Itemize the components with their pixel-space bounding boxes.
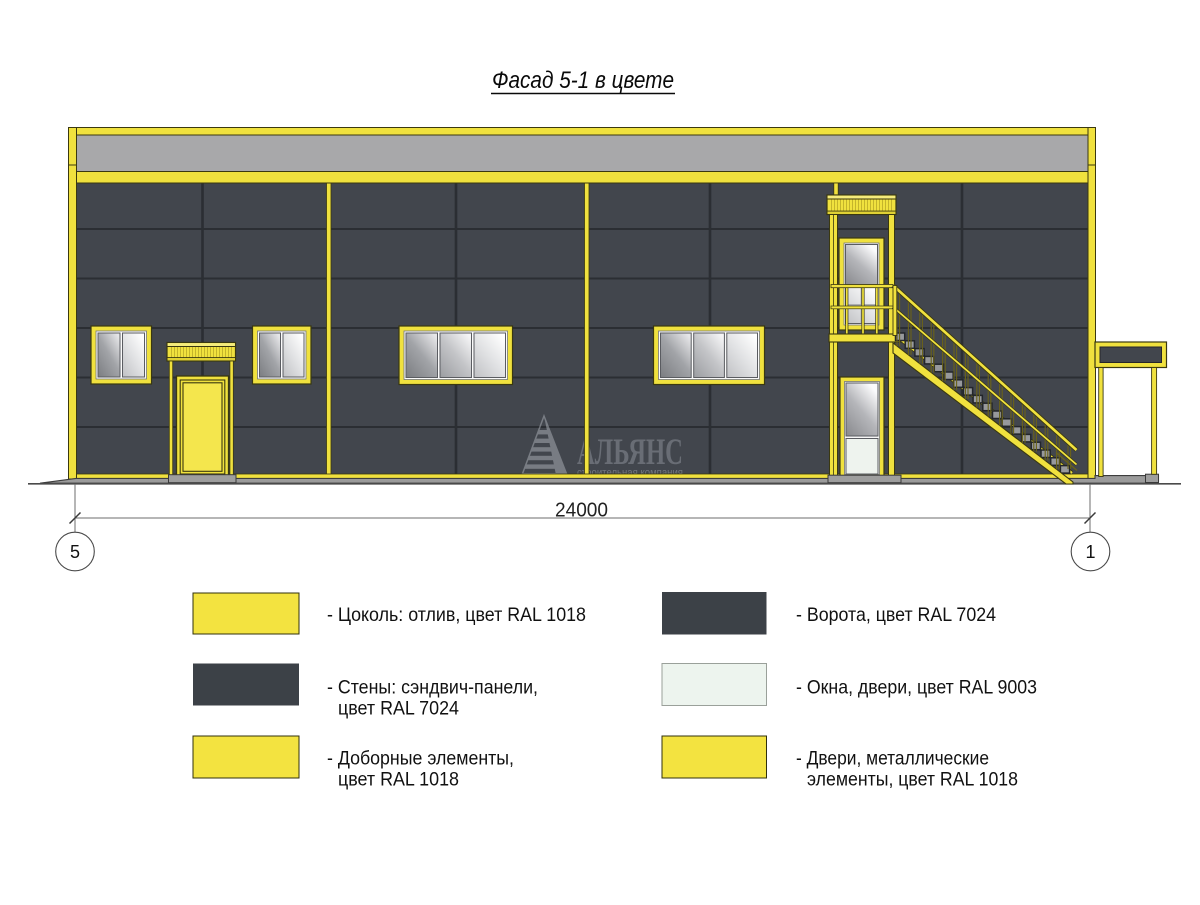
svg-text:1: 1	[1085, 542, 1095, 562]
svg-text:- Ворота, цвет RAL 7024: - Ворота, цвет RAL 7024	[796, 604, 996, 626]
svg-text:цвет RAL 1018: цвет RAL 1018	[338, 769, 459, 791]
svg-text:цвет RAL 7024: цвет RAL 7024	[338, 698, 459, 720]
svg-text:- Окна, двери, цвет RAL 9003: - Окна, двери, цвет RAL 9003	[796, 677, 1037, 699]
svg-text:- Стены: сэндвич-панели,: - Стены: сэндвич-панели,	[327, 677, 538, 699]
svg-text:24000: 24000	[555, 500, 608, 522]
svg-text:- Двери, металлические: - Двери, металлические	[796, 748, 989, 770]
svg-text:Фасад 5-1 в цвете: Фасад 5-1 в цвете	[492, 67, 674, 94]
svg-text:5: 5	[70, 542, 80, 562]
svg-text:элементы, цвет RAL 1018: элементы, цвет RAL 1018	[807, 769, 1018, 791]
svg-text:- Цоколь: отлив, цвет RAL 1018: - Цоколь: отлив, цвет RAL 1018	[327, 604, 586, 626]
svg-text:- Доборные элементы,: - Доборные элементы,	[327, 748, 514, 770]
